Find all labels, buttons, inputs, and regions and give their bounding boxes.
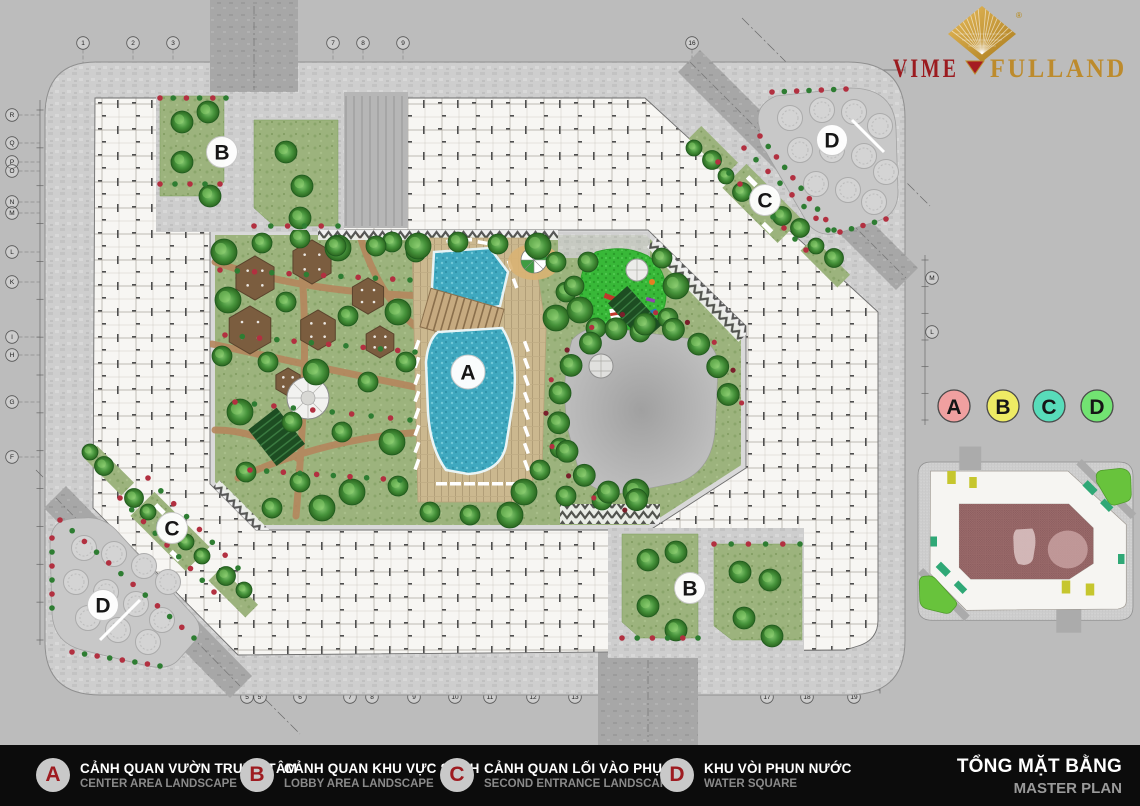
plan-title-en: MASTER PLAN <box>957 780 1122 797</box>
plan-marker-d: D <box>817 125 848 156</box>
legend-item-d: D KHU VÒI PHUN NƯỚC WATER SQUARE <box>660 758 852 792</box>
svg-text:D: D <box>1089 396 1104 419</box>
area-badge-b: B <box>987 390 1019 422</box>
svg-text:M: M <box>9 210 14 217</box>
svg-text:G: G <box>9 399 14 406</box>
legend-badge-b: B <box>240 758 274 792</box>
legend-label-d-en: WATER SQUARE <box>704 778 852 790</box>
svg-text:N: N <box>10 199 15 206</box>
svg-text:D: D <box>95 595 110 618</box>
area-badge-d: D <box>1081 390 1113 422</box>
area-badge-a: A <box>938 390 970 422</box>
area-badge-c: C <box>1033 390 1065 422</box>
svg-text:A: A <box>460 362 475 385</box>
master-plan-page: 1237891655'67891011121314171819RQPONMLKI… <box>0 0 1140 806</box>
svg-text:M: M <box>929 275 934 282</box>
svg-text:R: R <box>10 112 15 119</box>
brand-name-right: FULLAND <box>990 54 1127 83</box>
svg-text:16: 16 <box>688 40 696 47</box>
svg-text:B: B <box>682 578 697 601</box>
plan-marker-d: D <box>88 590 119 621</box>
svg-text:F: F <box>10 454 14 461</box>
svg-text:L: L <box>930 329 934 336</box>
key-plan <box>918 447 1137 633</box>
svg-text:A: A <box>946 396 961 419</box>
plan-marker-b: B <box>207 137 238 168</box>
svg-text:Q: Q <box>9 140 14 147</box>
svg-text:B: B <box>214 142 229 165</box>
svg-text:1: 1 <box>81 40 85 47</box>
svg-text:2: 2 <box>131 40 135 47</box>
brand-name-left: VIME <box>893 54 959 83</box>
legend-label-c-vi: CẢNH QUAN LỐI VÀO PHỤ <box>484 761 675 776</box>
main-pool <box>426 328 515 474</box>
svg-text:D: D <box>824 130 839 153</box>
svg-text:B: B <box>995 396 1010 419</box>
svg-text:I: I <box>11 334 13 341</box>
legend-label-c-en: SECOND ENTRANCE LANDSCAPE <box>484 778 675 790</box>
plan-title-vi: TỔNG MẶT BẰNG <box>957 756 1122 778</box>
stone-sphere <box>589 354 613 378</box>
master-plan-drawing: 1237891655'67891011121314171819RQPONMLKI… <box>0 0 1140 806</box>
legend-badge-d: D <box>660 758 694 792</box>
svg-text:3: 3 <box>171 40 175 47</box>
legend-badge-c: C <box>440 758 474 792</box>
plan-marker-c: C <box>157 513 188 544</box>
svg-text:L: L <box>10 249 14 256</box>
svg-text:H: H <box>10 352 15 359</box>
legend-label-d-vi: KHU VÒI PHUN NƯỚC <box>704 761 852 776</box>
svg-text:C: C <box>757 190 772 213</box>
svg-text:K: K <box>10 279 15 286</box>
svg-text:C: C <box>1041 396 1056 419</box>
legend-item-c: C CẢNH QUAN LỐI VÀO PHỤ SECOND ENTRANCE … <box>440 758 675 792</box>
plan-marker-c: C <box>750 185 781 216</box>
svg-text:7: 7 <box>331 40 335 47</box>
svg-text:C: C <box>164 518 179 541</box>
plan-marker-b: B <box>675 573 706 604</box>
registered-mark: ® <box>1016 11 1022 20</box>
plan-marker-a: A <box>451 355 485 389</box>
legend-bar: A CẢNH QUAN VƯỜN TRUNG TÂM CENTER AREA L… <box>0 745 1140 806</box>
svg-text:9: 9 <box>401 40 405 47</box>
svg-text:8: 8 <box>361 40 365 47</box>
plan-title: TỔNG MẶT BẰNG MASTER PLAN <box>957 756 1122 797</box>
svg-text:O: O <box>9 168 14 175</box>
legend-badge-a: A <box>36 758 70 792</box>
